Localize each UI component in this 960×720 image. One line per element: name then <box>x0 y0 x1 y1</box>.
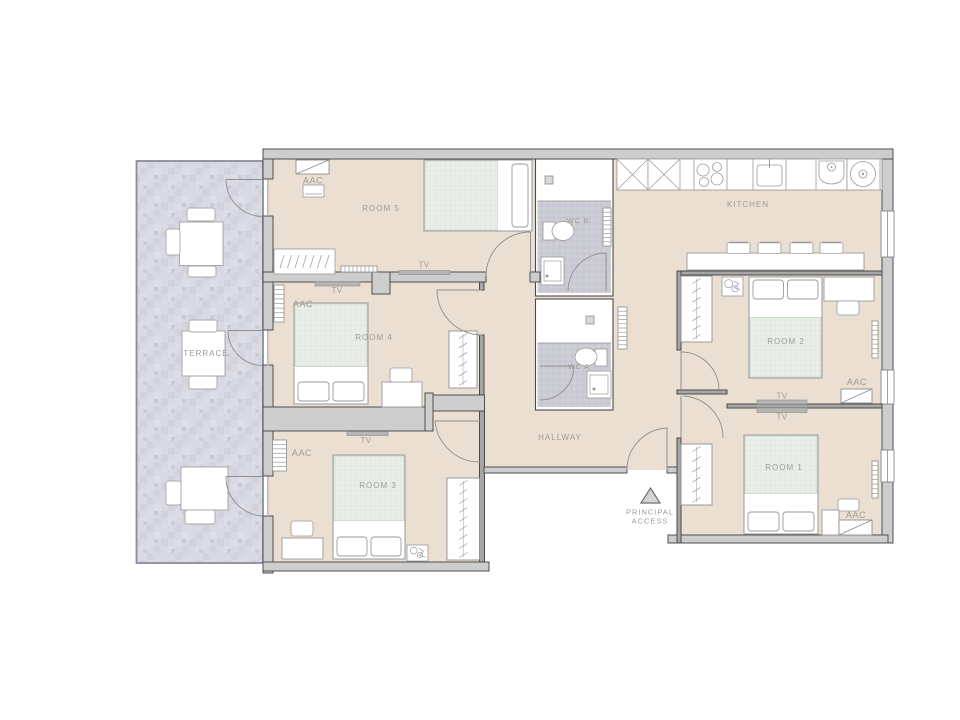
svg-text:WC A: WC A <box>568 364 590 371</box>
svg-text:AAC: AAC <box>293 299 313 309</box>
svg-text:AAC: AAC <box>846 510 866 520</box>
svg-text:ROOM 5: ROOM 5 <box>362 204 400 213</box>
svg-text:ROOM 1: ROOM 1 <box>765 463 803 472</box>
svg-text:HALLWAY: HALLWAY <box>538 433 582 442</box>
svg-text:AAC: AAC <box>292 448 312 458</box>
svg-text:ROOM 3: ROOM 3 <box>359 481 397 490</box>
svg-text:TV: TV <box>360 436 371 445</box>
svg-text:AAC: AAC <box>303 176 323 186</box>
svg-text:KITCHEN: KITCHEN <box>727 200 769 209</box>
svg-text:ROOM 4: ROOM 4 <box>355 333 393 342</box>
svg-text:TV: TV <box>331 286 342 295</box>
svg-text:AAC: AAC <box>847 377 867 387</box>
svg-text:ROOM 2: ROOM 2 <box>767 337 805 346</box>
svg-text:TV: TV <box>418 261 429 270</box>
svg-text:ACCESS: ACCESS <box>632 517 669 526</box>
svg-text:TV: TV <box>776 392 787 401</box>
svg-text:WC B: WC B <box>567 218 589 225</box>
svg-text:PRINCIPAL: PRINCIPAL <box>626 508 674 517</box>
svg-text:TERRACE: TERRACE <box>183 349 228 358</box>
svg-text:TV: TV <box>776 413 787 422</box>
